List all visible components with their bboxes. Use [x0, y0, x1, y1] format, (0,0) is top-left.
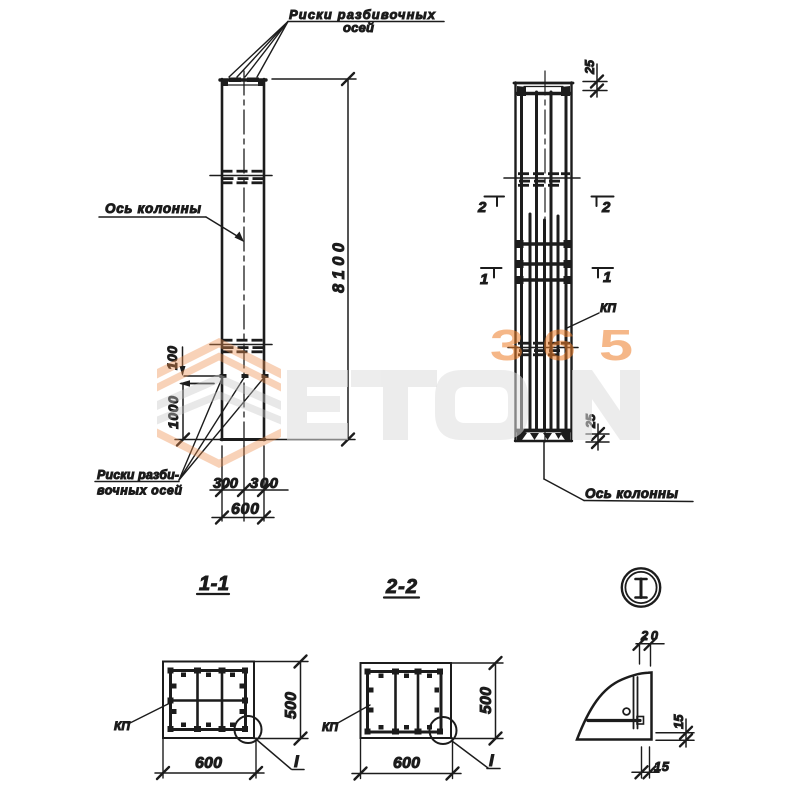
svg-text:300: 300 — [213, 475, 239, 492]
svg-text:2: 2 — [601, 199, 611, 216]
svg-text:500: 500 — [478, 687, 495, 714]
svg-text:1: 1 — [480, 271, 488, 288]
svg-text:1: 1 — [603, 269, 611, 286]
svg-text:600: 600 — [231, 501, 259, 518]
svg-text:Риски разби-: Риски разби- — [97, 468, 179, 482]
svg-text:КП: КП — [322, 720, 338, 734]
svg-text:2-2: 2-2 — [385, 576, 417, 598]
svg-text:600: 600 — [195, 755, 222, 772]
svg-text:3: 3 — [490, 321, 524, 369]
svg-text:6: 6 — [542, 321, 576, 369]
svg-text:15: 15 — [671, 714, 686, 729]
svg-text:25: 25 — [583, 59, 597, 75]
svg-text:Ось колонны: Ось колонны — [105, 201, 201, 216]
svg-text:300: 300 — [250, 475, 280, 492]
svg-text:1-1: 1-1 — [199, 573, 229, 595]
svg-text:вочных осей: вочных осей — [97, 484, 182, 498]
svg-text:Ось колонны: Ось колонны — [585, 486, 678, 501]
svg-text:2: 2 — [477, 199, 487, 216]
svg-text:15: 15 — [654, 759, 670, 774]
svg-text:600: 600 — [393, 755, 420, 772]
svg-text:500: 500 — [283, 692, 300, 719]
svg-text:КП: КП — [600, 301, 616, 315]
svg-text:КП: КП — [114, 719, 130, 733]
svg-text:5: 5 — [599, 321, 633, 369]
